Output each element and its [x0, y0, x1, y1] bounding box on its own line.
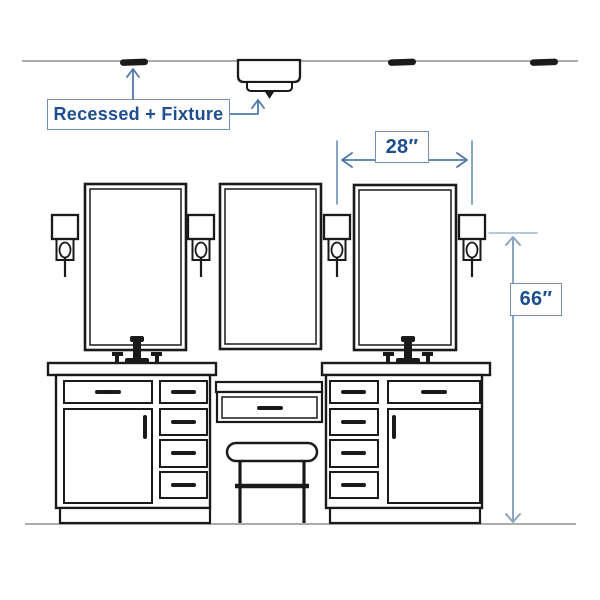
recessed-fixture-callout: Recessed + Fixture [47, 99, 230, 130]
wall-sconce-icon [324, 215, 350, 277]
sconce-spacing-dimension-label: 28″ [375, 131, 429, 163]
mirror [354, 185, 456, 350]
wall-sconce-icon [188, 215, 214, 277]
vanity-lighting-diagram: Recessed + Fixture 28″ 66″ [0, 0, 600, 600]
recessed-light-icon [120, 59, 148, 66]
height-dimension-66 [489, 233, 537, 522]
wall-sconce-icon [459, 215, 485, 277]
makeup-counter-drawer [216, 382, 322, 422]
vanity-stool [227, 443, 317, 523]
wall-sconce-icon [52, 215, 78, 277]
right-vanity-cabinet [322, 363, 490, 523]
mirror [220, 184, 321, 349]
mirror [85, 184, 186, 350]
recessed-light-icon [388, 59, 416, 66]
sconce-height-dimension-label: 66″ [510, 283, 562, 316]
flush-mount-fixture-icon [238, 60, 300, 98]
recessed-light-icon [530, 59, 558, 66]
left-vanity-cabinet [48, 363, 216, 523]
